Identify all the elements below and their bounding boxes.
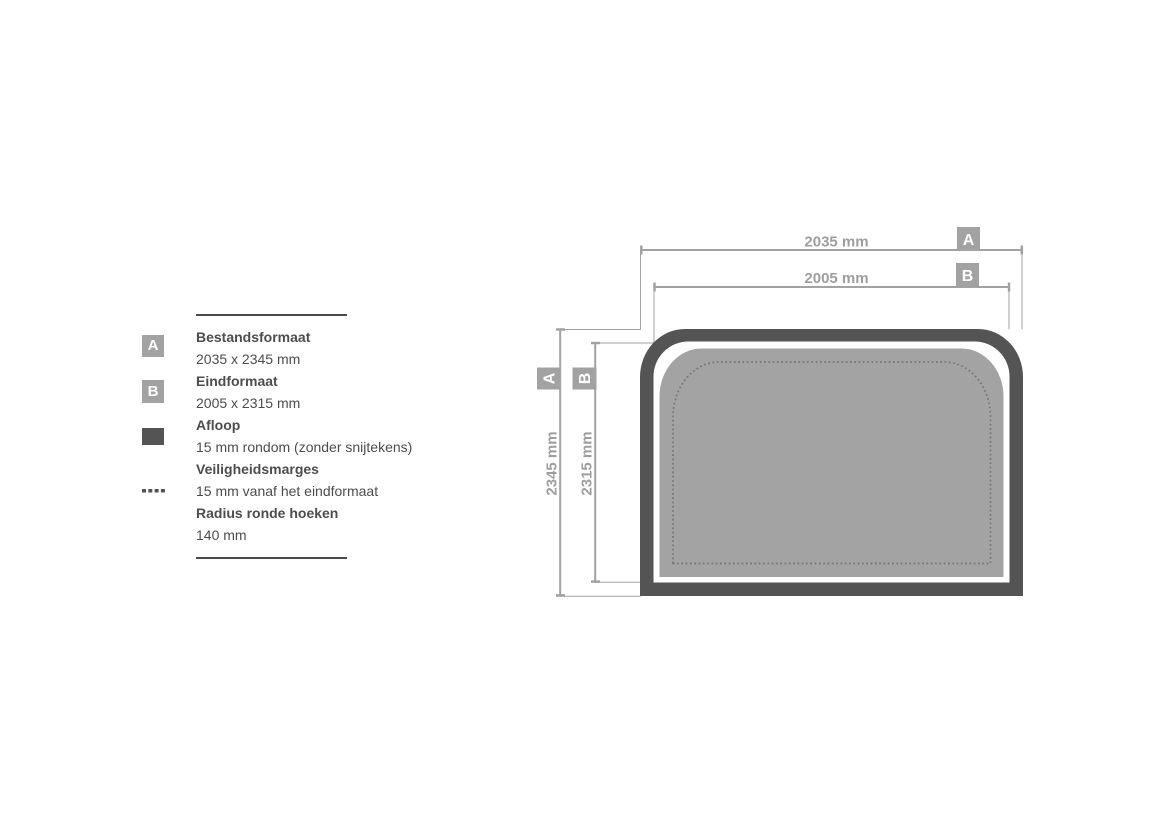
svg-text:2005 mm: 2005 mm <box>804 270 868 287</box>
svg-text:2035 mm: 2035 mm <box>804 234 868 251</box>
svg-text:2345 mm: 2345 mm <box>544 431 561 495</box>
svg-text:2315 mm: 2315 mm <box>579 431 596 495</box>
svg-text:A: A <box>963 232 975 249</box>
svg-text:B: B <box>577 373 594 385</box>
svg-text:B: B <box>962 268 974 285</box>
svg-text:A: A <box>542 372 559 384</box>
